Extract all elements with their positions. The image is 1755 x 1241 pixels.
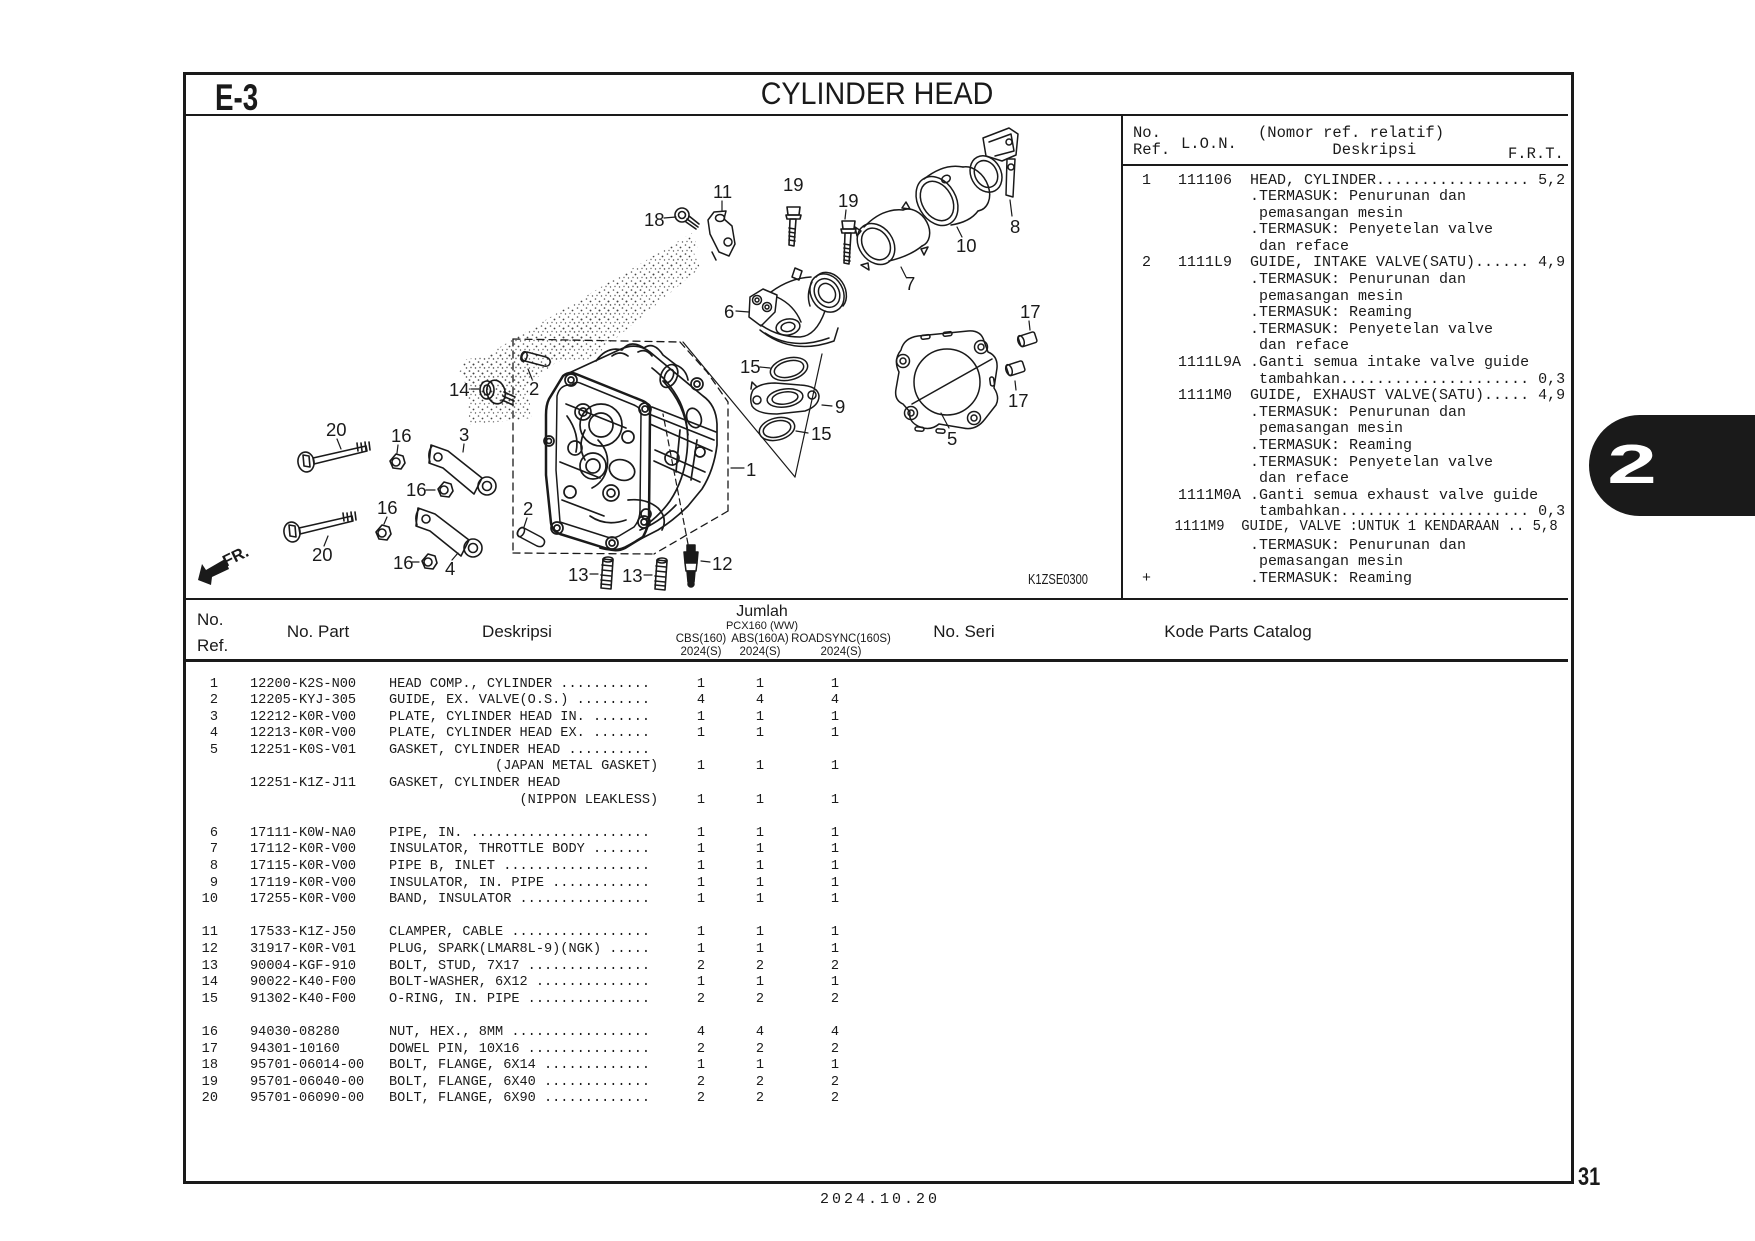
svg-text:17: 17: [1008, 390, 1029, 411]
svg-text:16: 16: [377, 497, 398, 518]
svg-text:9: 9: [835, 396, 845, 417]
svg-text:15: 15: [740, 356, 761, 377]
svg-text:6: 6: [724, 301, 734, 322]
svg-text:15: 15: [811, 423, 832, 444]
svg-text:16: 16: [393, 552, 414, 573]
svg-text:16: 16: [406, 479, 427, 500]
svg-text:16: 16: [391, 425, 412, 446]
svg-text:4: 4: [445, 558, 455, 579]
svg-text:18: 18: [644, 209, 665, 230]
svg-text:11: 11: [713, 181, 732, 202]
svg-text:K1ZSE0300: K1ZSE0300: [1028, 571, 1088, 588]
svg-text:20: 20: [312, 544, 333, 565]
svg-text:12: 12: [712, 553, 733, 574]
svg-text:19: 19: [838, 190, 859, 211]
svg-text:5: 5: [947, 428, 957, 449]
svg-text:20: 20: [326, 419, 347, 440]
svg-text:2: 2: [529, 378, 539, 399]
svg-text:19: 19: [783, 174, 804, 195]
svg-text:FR.: FR.: [220, 543, 252, 571]
svg-text:17: 17: [1020, 301, 1041, 322]
svg-text:10: 10: [956, 235, 977, 256]
svg-text:2: 2: [523, 498, 533, 519]
svg-text:8: 8: [1010, 216, 1020, 237]
svg-text:3: 3: [459, 424, 469, 445]
svg-text:7: 7: [905, 273, 915, 294]
svg-text:13: 13: [622, 565, 643, 586]
svg-text:13: 13: [568, 564, 589, 585]
svg-text:1: 1: [746, 459, 756, 480]
svg-text:14: 14: [449, 379, 470, 400]
